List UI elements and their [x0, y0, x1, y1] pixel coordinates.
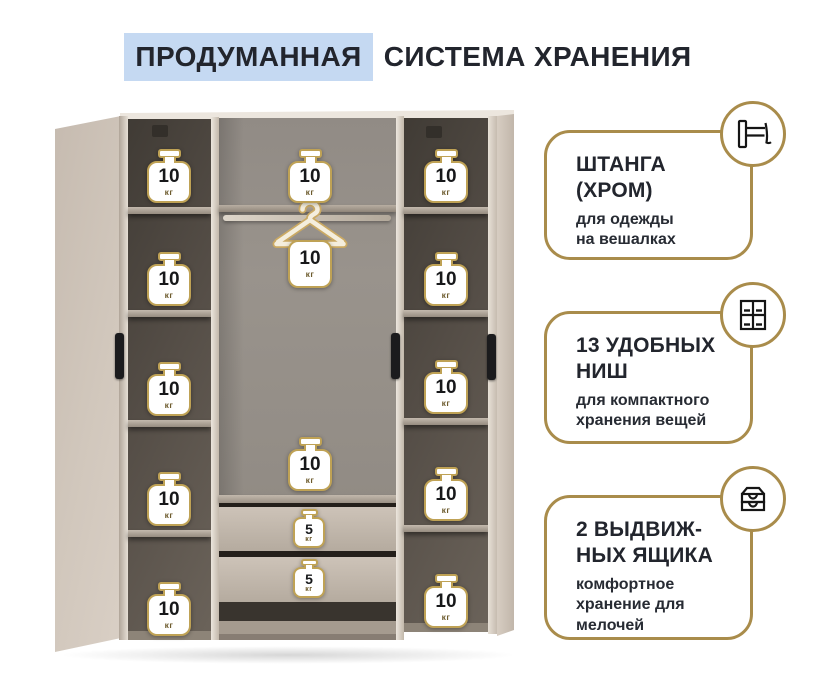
weight-neck [440, 368, 453, 374]
weight-body: 10кг [424, 479, 468, 521]
shelf [128, 310, 211, 317]
weight-capacity-badge: 10кг [147, 252, 191, 306]
weight-neck [163, 480, 176, 486]
weight-value: 5 [305, 522, 313, 536]
feature-title-line: НЫХ ЯЩИКА [576, 543, 732, 569]
feature-icon-circle [720, 466, 786, 532]
feature-card-drawers: 2 ВЫДВИЖ- НЫХ ЯЩИКА комфортное хранение … [544, 495, 753, 640]
feature-card-niches: 13 УДОБНЫХ НИШ для компактного хранения … [544, 311, 753, 444]
shelf [404, 310, 488, 317]
feature-title-line: (ХРОМ) [576, 178, 732, 204]
weight-body: 10кг [424, 161, 468, 203]
feature-subtitle-line: хранение для [576, 595, 732, 615]
weight-value: 5 [305, 572, 313, 586]
feature-subtitle: для компактного хранения вещей [576, 391, 732, 431]
weight-value: 10 [435, 485, 456, 504]
weight-value: 10 [158, 380, 179, 399]
weight-unit: кг [306, 269, 315, 279]
shelf [404, 525, 488, 532]
weight-neck [440, 260, 453, 266]
shelf [128, 420, 211, 427]
feature-subtitle-line: хранения вещей [576, 411, 732, 431]
weight-neck [163, 370, 176, 376]
weight-body: 5кг [293, 517, 325, 548]
weight-neck [304, 515, 314, 519]
weight-body: 5кг [293, 567, 325, 598]
weight-body: 10кг [288, 449, 332, 491]
bottom-shelf [219, 495, 396, 503]
weight-capacity-badge: 10кг [288, 437, 332, 491]
weight-capacity-badge: 10кг [424, 252, 468, 306]
feature-title: ШТАНГА (ХРОМ) [576, 152, 732, 203]
weight-neck [304, 565, 314, 569]
weight-body: 10кг [147, 161, 191, 203]
weight-value: 10 [435, 378, 456, 397]
weight-body: 10кг [147, 264, 191, 306]
shelf [404, 418, 488, 425]
feature-title: 13 УДОБНЫХ НИШ [576, 333, 732, 384]
weight-value: 10 [158, 270, 179, 289]
weight-neck [163, 157, 176, 163]
weight-capacity-badge: 10кг [424, 149, 468, 203]
base-recess [219, 602, 396, 621]
feature-subtitle-line: на вешалках [576, 230, 732, 250]
weight-unit: кг [442, 398, 451, 408]
right-door [497, 114, 514, 636]
drawer-weight-badge: 5кг [293, 559, 325, 598]
weight-value: 10 [435, 167, 456, 186]
shelf [128, 207, 211, 214]
feature-title-line: 2 ВЫДВИЖ- [576, 517, 732, 543]
weight-neck [440, 157, 453, 163]
partition-panel [211, 117, 219, 640]
hanger-weight-label: 10кг [288, 240, 332, 288]
feature-title-line: НИШ [576, 359, 732, 385]
weight-body: 10кг [147, 594, 191, 636]
hinge-mark [152, 125, 168, 137]
feature-card-rod: ШТАНГА (ХРОМ) для одежды на вешалках [544, 130, 753, 260]
feature-subtitle-line: для одежды [576, 210, 732, 230]
feature-title: 2 ВЫДВИЖ- НЫХ ЯЩИКА [576, 517, 732, 568]
weight-capacity-badge: 10кг [288, 149, 332, 203]
weight-unit: кг [442, 187, 451, 197]
weight-neck [304, 445, 317, 451]
weight-body: 10кг [147, 374, 191, 416]
drawers-icon [735, 482, 771, 516]
weight-capacity-badge: 10кг [147, 149, 191, 203]
left-open-door [55, 116, 121, 652]
feature-icon-circle [720, 282, 786, 348]
weight-value: 10 [158, 167, 179, 186]
weight-body: 10кг [424, 372, 468, 414]
weight-unit: кг [165, 187, 174, 197]
weight-neck [163, 590, 176, 596]
weight-value: 10 [299, 455, 320, 474]
door-handle [115, 333, 124, 379]
weight-unit: кг [165, 620, 174, 630]
weight-value: 10 [158, 600, 179, 619]
base-board [219, 621, 396, 634]
niches-grid-icon [736, 297, 770, 333]
weight-value: 10 [299, 167, 320, 186]
weight-value: 10 [299, 249, 320, 268]
floor-shadow [58, 646, 518, 664]
weight-capacity-badge: 10кг [424, 467, 468, 521]
door-handle [391, 333, 400, 379]
weight-unit: кг [442, 612, 451, 622]
feature-subtitle-line: мелочей [576, 616, 732, 636]
base-edge [219, 634, 396, 640]
weight-neck [163, 260, 176, 266]
storage-infographic: ПРОДУМАННАЯ СИСТЕМА ХРАНЕНИЯ [0, 0, 816, 700]
weight-neck [440, 475, 453, 481]
hanging-rod-icon [733, 117, 773, 151]
shelf [128, 530, 211, 537]
weight-neck [440, 582, 453, 588]
feature-subtitle-line: комфортное [576, 575, 732, 595]
weight-unit: кг [165, 510, 174, 520]
shelf [404, 207, 488, 214]
feature-subtitle-line: для компактного [576, 391, 732, 411]
weight-body: 10кг [424, 586, 468, 628]
weight-body: 10кг [288, 240, 332, 288]
drawer-weight-badge: 5кг [293, 509, 325, 548]
weight-body: 10кг [424, 264, 468, 306]
feature-subtitle: для одежды на вешалках [576, 210, 732, 250]
weight-body: 10кг [147, 484, 191, 526]
weight-capacity-badge: 10кг [424, 574, 468, 628]
weight-capacity-badge: 10кг [147, 472, 191, 526]
weight-value: 10 [435, 270, 456, 289]
weight-capacity-badge: 10кг [147, 582, 191, 636]
door-handle [487, 334, 496, 380]
feature-title-line: ШТАНГА [576, 152, 732, 178]
weight-neck [304, 157, 317, 163]
feature-icon-circle [720, 101, 786, 167]
weight-unit: кг [305, 536, 312, 543]
weight-value: 10 [435, 592, 456, 611]
weight-unit: кг [305, 586, 312, 593]
weight-unit: кг [442, 290, 451, 300]
feature-title-line: 13 УДОБНЫХ [576, 333, 732, 359]
hinge-mark [426, 126, 442, 138]
weight-capacity-badge: 10кг [147, 362, 191, 416]
feature-subtitle: комфортное хранение для мелочей [576, 575, 732, 635]
weight-body: 10кг [288, 161, 332, 203]
weight-unit: кг [306, 475, 315, 485]
weight-unit: кг [165, 290, 174, 300]
weight-unit: кг [165, 400, 174, 410]
weight-unit: кг [306, 187, 315, 197]
weight-value: 10 [158, 490, 179, 509]
weight-capacity-badge: 10кг [424, 360, 468, 414]
weight-unit: кг [442, 505, 451, 515]
